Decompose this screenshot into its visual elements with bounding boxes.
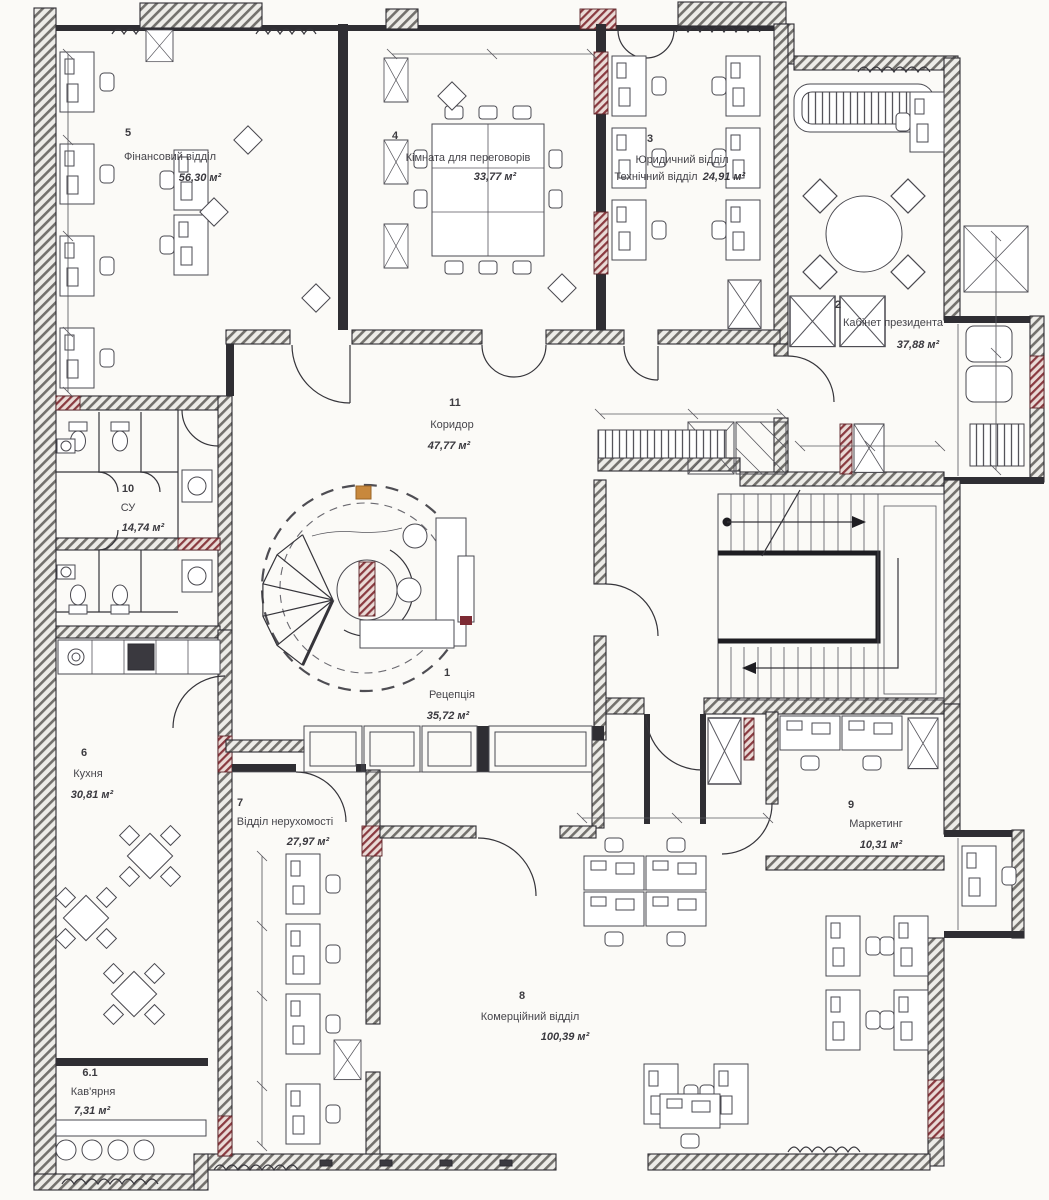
room-3-name2: Технічний відділ	[614, 171, 697, 183]
toilet	[111, 585, 129, 614]
duct-shaft	[708, 718, 741, 784]
cabinet	[384, 224, 408, 268]
desk	[962, 846, 1016, 906]
desk	[712, 56, 760, 116]
bay-bench	[970, 424, 1024, 466]
desk	[646, 892, 706, 946]
desk	[612, 200, 666, 260]
cafe-table	[83, 943, 185, 1045]
reception-chair	[403, 524, 427, 548]
room-5-number: 5	[125, 127, 131, 139]
cabinet	[384, 58, 408, 102]
armchair	[966, 326, 1012, 362]
room9-furniture	[780, 716, 1016, 906]
room-8-area: 100,39 м²	[541, 1031, 590, 1043]
room-label-10: 10 СУ 14,74 м²	[121, 483, 165, 534]
cabinet	[384, 140, 408, 184]
reception-counter	[360, 620, 454, 648]
desk	[584, 838, 644, 890]
chair	[891, 255, 925, 289]
washing-machine	[182, 560, 212, 592]
glazed-partition	[304, 726, 592, 772]
room-7-name: Відділ нерухомості	[237, 816, 333, 828]
plant	[548, 274, 576, 302]
desk	[646, 838, 706, 890]
room-6-1-area: 7,31 м²	[74, 1105, 111, 1117]
plant	[234, 126, 262, 154]
desk	[286, 924, 340, 984]
stair-steps-lower	[731, 647, 864, 698]
cabinet	[146, 30, 173, 62]
room-3-name: Юридичний відділ	[635, 154, 728, 166]
room-4-number: 4	[392, 130, 399, 142]
room-7-area: 27,97 м²	[286, 836, 330, 848]
room-5-area: 56,30 м²	[179, 172, 222, 184]
room-11-name: Коридор	[430, 419, 473, 431]
desk	[286, 1084, 340, 1144]
cafe-bar-counter	[56, 1120, 206, 1136]
bar-stool	[134, 1140, 154, 1160]
room-4-area: 33,77 м²	[474, 171, 517, 183]
desk	[286, 854, 340, 914]
reception-area	[262, 485, 474, 691]
room-10-name: СУ	[121, 502, 137, 514]
bar-stool	[82, 1140, 102, 1160]
armchair	[966, 366, 1012, 402]
room-2-name: Кабінет президента	[843, 317, 944, 329]
toilet	[111, 422, 129, 451]
room-label-7: 7 Відділ нерухомості 27,97 м²	[237, 797, 333, 848]
room2-furniture	[790, 84, 1028, 466]
annotation-scribble	[312, 528, 402, 536]
desk	[286, 994, 340, 1054]
room-3-number: 3	[647, 133, 653, 145]
desk	[712, 200, 760, 260]
room-label-8: 8 Комерційний відділ 100,39 м²	[481, 990, 590, 1043]
wardrobe	[790, 296, 835, 347]
room-1-number: 1	[444, 667, 450, 679]
room-4-name: Кімната для переговорів	[406, 152, 531, 164]
cabinet	[334, 1040, 361, 1080]
chair	[891, 179, 925, 213]
cabinet	[728, 280, 761, 328]
room-9-area: 10,31 м²	[860, 839, 903, 851]
room-6-1-name: Кав'ярня	[71, 1086, 116, 1098]
desk	[880, 916, 928, 976]
room-label-1: 1 Рецепція 35,72 м²	[427, 667, 475, 722]
room-6-area: 30,81 м²	[71, 789, 114, 801]
room-6-name: Кухня	[73, 768, 102, 780]
chair	[803, 179, 837, 213]
round-table	[826, 196, 902, 272]
bar-stool	[56, 1140, 76, 1160]
room-1-name: Рецепція	[429, 689, 475, 701]
room7-furniture	[286, 854, 361, 1144]
plant	[302, 284, 330, 312]
desk	[160, 215, 208, 275]
reception-red-marker	[460, 616, 472, 625]
desk	[826, 990, 880, 1050]
desk	[780, 716, 840, 770]
toilet	[69, 585, 87, 614]
room-label-11: 11 Коридор 47,77 м²	[427, 397, 474, 452]
bar-stool	[108, 1140, 128, 1160]
room-2-area: 37,88 м²	[897, 339, 940, 351]
room-label-6-1: 6.1 Кав'ярня 7,31 м²	[71, 1067, 116, 1117]
room-2-number: 2	[835, 299, 841, 311]
room-10-number: 10	[122, 483, 134, 495]
desk	[612, 56, 666, 116]
room-10-area: 14,74 м²	[122, 522, 165, 534]
room-8-name: Комерційний відділ	[481, 1011, 580, 1023]
room-11-area: 47,77 м²	[427, 440, 471, 452]
room-7-number: 7	[237, 797, 243, 809]
desk	[842, 716, 902, 770]
room-1-area: 35,72 м²	[427, 710, 470, 722]
spiral-staircase	[263, 535, 333, 666]
room-9-number: 9	[848, 799, 854, 811]
desk	[660, 1094, 720, 1148]
desk	[584, 892, 644, 946]
desk	[826, 916, 880, 976]
corridor-convector	[598, 430, 726, 458]
room8-furniture	[584, 838, 928, 1148]
kitchen-cafe-furniture	[35, 640, 220, 1160]
room-5-name: Фінансовий відділ	[124, 151, 216, 163]
room-8-number: 8	[519, 990, 525, 1002]
shaft-cabinet	[854, 424, 884, 472]
sink	[57, 565, 75, 579]
stove	[128, 644, 154, 670]
room-6-number: 6	[81, 747, 87, 759]
room-6-1-number: 6.1	[82, 1067, 97, 1079]
room-3-area: 24,91 м²	[702, 171, 746, 183]
washing-machine	[182, 470, 212, 502]
stair-well-wall	[718, 553, 878, 641]
sink	[57, 439, 75, 453]
orange-marker	[356, 486, 371, 499]
main-staircase	[718, 490, 944, 700]
reception-chair	[397, 578, 421, 602]
floor-plan-page: 5 Фінансовий відділ 56,30 м² 4 Кімната д…	[0, 0, 1049, 1200]
room-label-6: 6 Кухня 30,81 м²	[71, 747, 114, 801]
room-9-name: Маркетинг	[849, 818, 902, 830]
cabinet	[908, 718, 938, 769]
room-11-number: 11	[449, 397, 461, 409]
desk	[880, 990, 928, 1050]
floor-plan-svg: 5 Фінансовий відділ 56,30 м² 4 Кімната д…	[0, 0, 1049, 1200]
cafe-table	[99, 805, 201, 907]
room3-furniture	[594, 52, 761, 328]
chair	[803, 255, 837, 289]
room-label-9: 9 Маркетинг 10,31 м²	[848, 799, 903, 851]
